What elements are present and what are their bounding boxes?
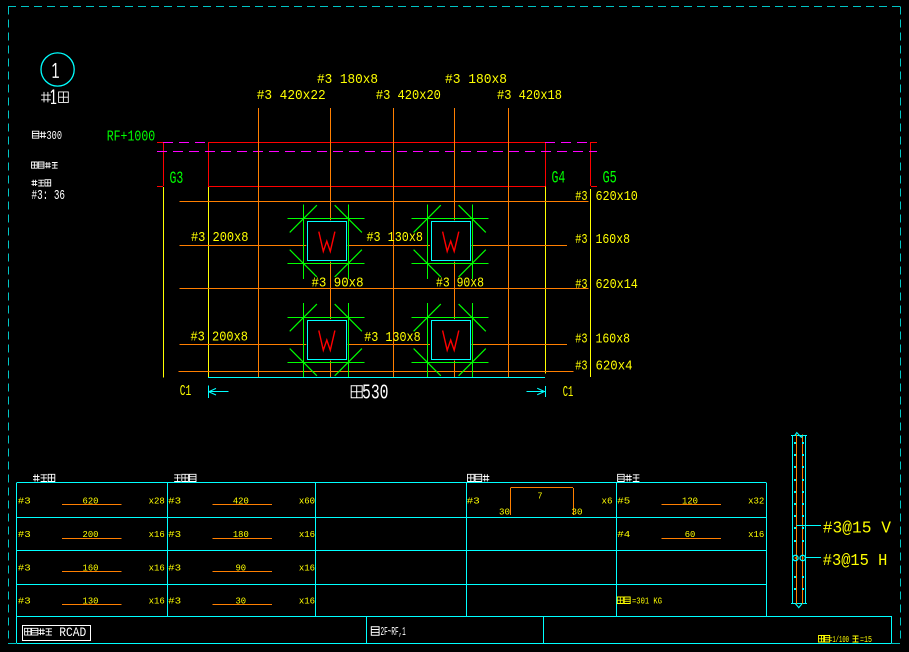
svg-text:=1/100: =1/100	[829, 634, 849, 645]
svg-text:#3: #3	[168, 596, 181, 607]
svg-text:x16: x16	[299, 529, 315, 540]
svg-text:C1: C1	[180, 383, 192, 400]
svg-text:x16: x16	[149, 529, 165, 540]
svg-text:#3: #3	[467, 496, 480, 507]
svg-text:=301 KG: =301 KG	[632, 596, 662, 607]
svg-text:#3 200x8: #3 200x8	[191, 329, 249, 345]
svg-text:#3: #3	[18, 563, 31, 574]
svg-text:=15: =15	[860, 634, 872, 645]
svg-text:#3: #3	[18, 529, 31, 540]
svg-text:G4: G4	[552, 169, 566, 189]
svg-text:RCAD: RCAD	[59, 625, 86, 640]
svg-text:7: 7	[538, 491, 543, 502]
svg-text:30: 30	[572, 507, 583, 518]
svg-text:#3 90x8: #3 90x8	[436, 275, 484, 291]
svg-text:#3: 36: #3: 36	[32, 189, 66, 204]
svg-text:x60: x60	[299, 496, 315, 507]
svg-text:160x8: 160x8	[596, 232, 631, 248]
svg-text:#3 180x8: #3 180x8	[445, 72, 507, 88]
svg-text:#3 420x18: #3 420x18	[497, 88, 562, 104]
svg-text:G5: G5	[603, 169, 617, 189]
svg-text:#3@15 V: #3@15 V	[823, 520, 892, 539]
svg-text:530: 530	[362, 383, 389, 406]
svg-text:#3 420x20: #3 420x20	[376, 88, 441, 104]
svg-text:#3: #3	[18, 496, 31, 507]
svg-text:#3 130x8: #3 130x8	[367, 230, 424, 246]
svg-text:RF+1000: RF+1000	[107, 130, 156, 146]
svg-text:#3: #3	[575, 232, 587, 248]
svg-text:x28: x28	[149, 496, 165, 507]
svg-text:#3 130x8: #3 130x8	[364, 330, 421, 346]
svg-text:x16: x16	[149, 563, 165, 574]
svg-text:#3@15 H: #3@15 H	[823, 552, 888, 571]
svg-text:90: 90	[236, 563, 247, 574]
svg-text:x16: x16	[748, 529, 764, 540]
svg-text:#3 90x8: #3 90x8	[312, 275, 364, 291]
svg-text:x16: x16	[299, 596, 315, 607]
svg-text:#3: #3	[168, 496, 181, 507]
svg-text:#3: #3	[18, 596, 31, 607]
svg-text:#3: #3	[575, 189, 587, 205]
svg-text:#3: #3	[575, 332, 587, 348]
svg-text:2F~RF,1: 2F~RF,1	[381, 625, 406, 639]
svg-text:300: 300	[47, 129, 63, 143]
svg-text:C1: C1	[563, 384, 574, 401]
svg-text:130: 130	[83, 596, 99, 607]
svg-text:#3 180x8: #3 180x8	[317, 72, 378, 88]
svg-text:160: 160	[83, 563, 99, 574]
svg-text:x16: x16	[149, 596, 165, 607]
svg-text:620x14: 620x14	[596, 277, 638, 293]
svg-text:620x4: 620x4	[596, 358, 633, 374]
svg-text:x16: x16	[299, 563, 315, 574]
svg-text:#5: #5	[617, 496, 630, 507]
svg-text:620x10: 620x10	[596, 189, 638, 205]
svg-text:160x8: 160x8	[596, 332, 631, 348]
svg-text:30: 30	[499, 507, 510, 518]
svg-text:30: 30	[236, 596, 247, 607]
svg-text:x32: x32	[748, 496, 764, 507]
svg-text:x6: x6	[602, 496, 613, 507]
svg-text:#3: #3	[168, 563, 181, 574]
svg-text:#4: #4	[617, 529, 630, 540]
svg-text:#3: #3	[575, 277, 587, 293]
svg-text:#3 200x8: #3 200x8	[191, 230, 249, 246]
svg-text:#3: #3	[575, 358, 587, 374]
svg-text:#3 420x22: #3 420x22	[257, 88, 326, 104]
svg-text:G3: G3	[170, 169, 184, 189]
svg-text:#3: #3	[168, 529, 181, 540]
